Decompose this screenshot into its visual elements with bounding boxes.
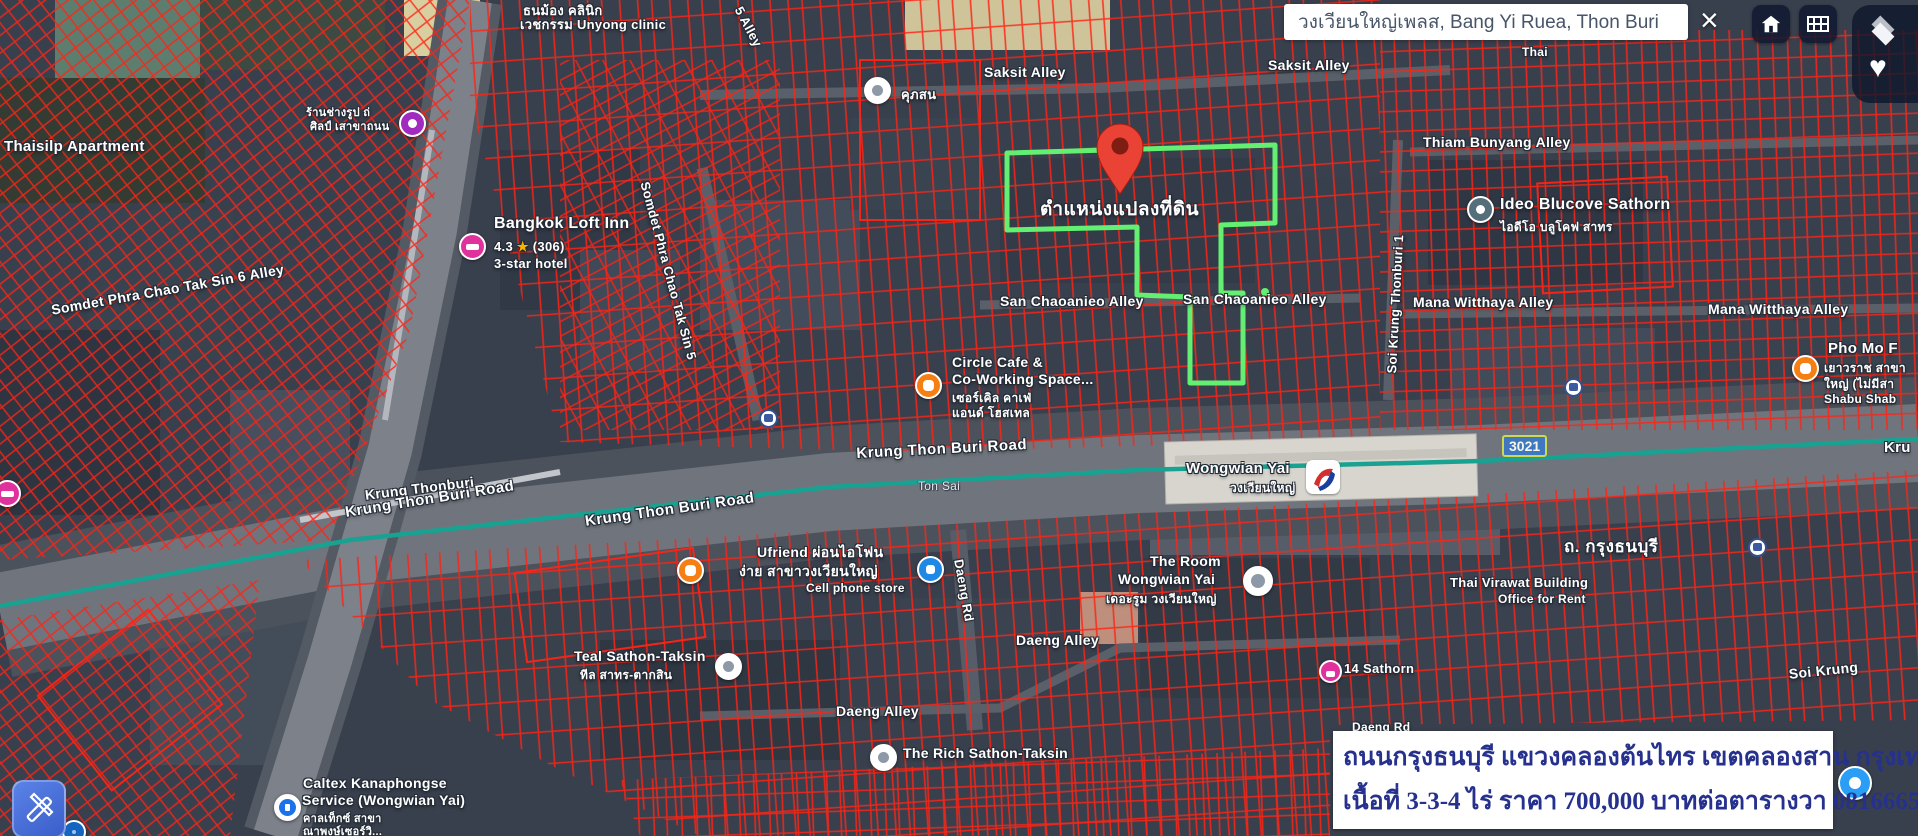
poi-rating-bangkok-loft-inn: 4.3 ★ (306) xyxy=(494,239,565,255)
poi-label-ideo-blucove-th: ไอดีโอ บลูโคฟ สาทร xyxy=(1500,218,1613,237)
street-label-mana-witthaya-1: Mana Witthaya Alley xyxy=(1413,294,1553,310)
cafe-icon-circle-cafe[interactable] xyxy=(915,372,942,399)
map-side-panel[interactable]: ♥ xyxy=(1852,5,1918,103)
street-label-san-chaoanieo-2: San Chaoanieo Alley xyxy=(1183,291,1327,307)
grid-icon xyxy=(1806,12,1830,36)
khupason-icon[interactable] xyxy=(864,77,891,104)
heart-icon[interactable]: ♥ xyxy=(1869,53,1887,83)
bts-logo-icon xyxy=(1306,460,1340,494)
road-label-thanon-krung-thonburi: ถ. กรุงธนบุรี xyxy=(1564,533,1658,560)
restaurant-icon[interactable] xyxy=(677,557,704,584)
pin-label: ตำแหน่งแปลงที่ดิน xyxy=(1040,194,1199,224)
poi-label-the-room-th: เดอะรูม วงเวียนใหญ่ xyxy=(1106,590,1217,609)
street-label-saksit-alley-1: Saksit Alley xyxy=(984,64,1066,80)
rating-value: 4.3 xyxy=(494,239,513,254)
poi-category-bangkok-loft-inn: 3-star hotel xyxy=(494,256,568,271)
poi-label-the-room-2: Wongwian Yai xyxy=(1118,571,1215,587)
route-badge-3021: 3021 xyxy=(1502,435,1547,457)
search-box[interactable] xyxy=(1284,4,1688,40)
photo-shop-icon[interactable] xyxy=(399,110,426,137)
poi-label-caltex-th2: ณาพงษ์เซอร์วิ... xyxy=(303,822,382,836)
hotel-icon-bangkok-loft-inn[interactable] xyxy=(459,233,486,260)
poi-label-the-room-1: The Room xyxy=(1150,553,1221,569)
poi-label-circle-cafe-th2: แอนด์ โฮสเทล xyxy=(952,404,1030,423)
poi-label-pho-mo: Pho Mo F xyxy=(1828,340,1898,357)
poi-label-unyong-clinic-2: เวชกรรม Unyong clinic xyxy=(520,14,666,35)
home-icon xyxy=(1760,13,1782,35)
label-fragment-thai: Thai xyxy=(1522,45,1548,59)
poi-label-teal-sathon: Teal Sathon-Taksin xyxy=(574,648,706,664)
grid-button[interactable] xyxy=(1799,5,1837,43)
poi-label-ufriend-2: ง่าย สาขาวงเวียนใหญ่ xyxy=(739,561,878,583)
poi-label-bangkok-loft-inn: Bangkok Loft Inn xyxy=(494,215,629,233)
gas-station-icon-caltex[interactable] xyxy=(274,794,301,821)
listing-caption: ถนนกรุงธนบุรี แขวงคลองต้นไทร เขตคลองสาน … xyxy=(1333,731,1833,829)
poi-label-photo-shop-2: ศิลป์ เสาขาถนน xyxy=(310,117,389,135)
station-label-en: Wongwian Yai xyxy=(1186,460,1290,477)
place-icon-the-room[interactable] xyxy=(1243,566,1273,596)
poi-label-caltex-2: Service (Wongwian Yai) xyxy=(302,792,465,808)
poi-label-thaisilp-apartment: Thaisilp Apartment xyxy=(4,138,145,155)
poi-label-14-sathorn: 14 Sathorn xyxy=(1344,661,1414,676)
bus-stop-icon-1[interactable] xyxy=(759,409,778,428)
street-label-mana-witthaya-2: Mana Witthaya Alley xyxy=(1708,301,1848,317)
review-count: (306) xyxy=(533,239,565,254)
bus-stop-icon-3[interactable] xyxy=(1748,538,1767,557)
poi-label-pho-mo-2: Shabu Shab xyxy=(1824,392,1896,406)
street-label-daeng-alley-2: Daeng Alley xyxy=(1016,632,1099,648)
street-label-san-chaoanieo-1: San Chaoanieo Alley xyxy=(1000,293,1144,309)
home-button[interactable] xyxy=(1752,5,1790,43)
ruler-pencil-icon xyxy=(21,791,57,827)
hotel-icon-14-sathorn[interactable] xyxy=(1319,660,1342,683)
store-icon-ufriend[interactable] xyxy=(917,556,944,583)
street-label-saksit-alley-2: Saksit Alley xyxy=(1268,57,1350,73)
road-label-ton-sai: Ton Sai xyxy=(918,479,960,493)
poi-label-teal-sathon-th: ทีล สาทร-ตากสิน xyxy=(580,666,672,685)
layers-icon[interactable] xyxy=(1868,15,1898,45)
poi-label-ufriend-3: Cell phone store xyxy=(806,581,905,595)
caption-line-price: เนื้อที่ 3-3-4 ไร่ ราคา 700,000 บาทต่อตา… xyxy=(1343,780,1823,824)
road-label-kru-fragment: Kru xyxy=(1884,439,1911,456)
street-label-daeng-alley-1: Daeng Alley xyxy=(836,703,919,719)
caption-line-address: ถนนกรุงธนบุรี แขวงคลองต้นไทร เขตคลองสาน … xyxy=(1343,736,1823,780)
map-viewport[interactable]: ธนม้อง คลินิก เวชกรรม Unyong clinic Thai… xyxy=(0,0,1918,836)
place-icon-teal-sathon[interactable] xyxy=(715,653,742,680)
poi-label-thai-virawat-2: Office for Rent xyxy=(1498,592,1586,606)
star-icon: ★ xyxy=(517,239,529,254)
restaurant-icon-pho-mo[interactable] xyxy=(1792,355,1819,382)
poi-label-circle-cafe-2: Co-Working Space... xyxy=(952,371,1094,387)
poi-label-thai-virawat-1: Thai Virawat Building xyxy=(1450,575,1588,590)
poi-label-ideo-blucove: Ideo Blucove Sathorn xyxy=(1500,196,1670,214)
poi-label-circle-cafe-1: Circle Cafe & xyxy=(952,354,1043,370)
poi-label-caltex-1: Caltex Kanaphongse xyxy=(303,775,447,791)
street-label-thiam-bunyang: Thiam Bunyang Alley xyxy=(1423,134,1571,150)
poi-label-the-rich: The Rich Sathon-Taksin xyxy=(903,745,1068,761)
building-icon-ideo-blucove[interactable] xyxy=(1467,196,1494,223)
measure-tool-button[interactable] xyxy=(12,780,66,836)
bus-stop-icon-2[interactable] xyxy=(1564,378,1583,397)
station-label-th: วงเวียนใหญ่ xyxy=(1230,479,1295,498)
search-input[interactable] xyxy=(1296,10,1676,34)
poi-label-khupason: คุภสน xyxy=(901,84,936,105)
place-icon-the-rich[interactable] xyxy=(870,744,897,771)
close-icon[interactable]: × xyxy=(1700,0,1719,40)
